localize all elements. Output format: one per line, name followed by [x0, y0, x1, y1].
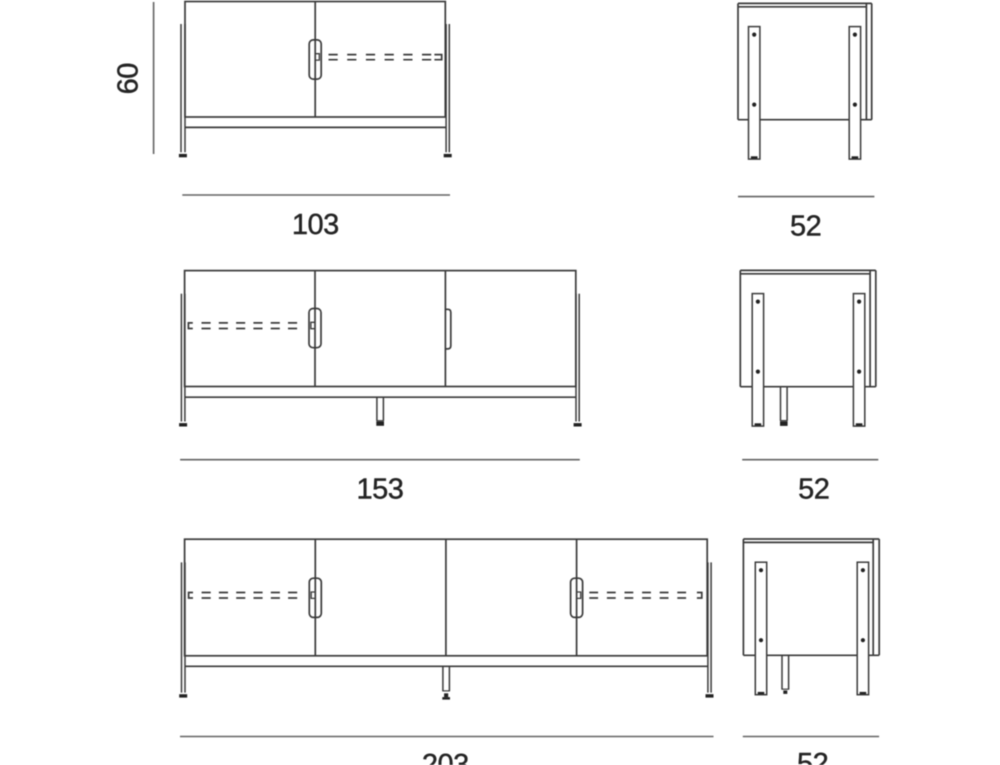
- svg-text:203: 203: [422, 749, 469, 765]
- svg-text:103: 103: [292, 209, 339, 241]
- svg-text:153: 153: [357, 473, 404, 505]
- svg-text:60: 60: [112, 63, 144, 94]
- svg-text:52: 52: [797, 748, 828, 765]
- svg-text:52: 52: [798, 474, 829, 506]
- svg-text:52: 52: [790, 210, 821, 242]
